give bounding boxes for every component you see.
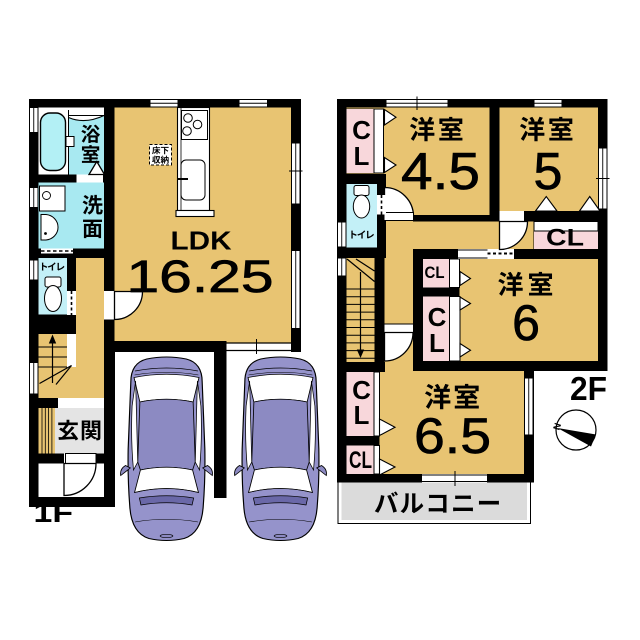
svg-text:1F: 1F: [34, 497, 74, 528]
svg-text:CL: CL: [349, 447, 372, 474]
svg-text:L: L: [429, 328, 445, 358]
svg-text:CL: CL: [546, 225, 584, 252]
svg-text:L: L: [354, 400, 370, 430]
svg-text:6.5: 6.5: [414, 408, 491, 464]
svg-text:6: 6: [512, 295, 540, 351]
svg-text:4.5: 4.5: [401, 143, 480, 201]
svg-text:16.25: 16.25: [127, 251, 274, 302]
svg-text:L: L: [354, 141, 370, 171]
svg-text:5: 5: [534, 143, 563, 201]
svg-text:2F: 2F: [570, 370, 607, 407]
svg-text:CL: CL: [425, 264, 445, 282]
